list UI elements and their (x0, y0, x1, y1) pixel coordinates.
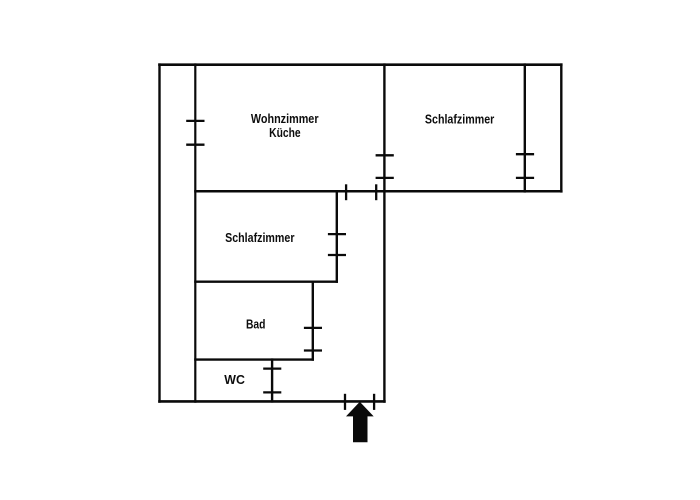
svg-text:Bad: Bad (246, 316, 266, 331)
svg-text:Schlafzimmer: Schlafzimmer (225, 230, 294, 245)
svg-text:Küche: Küche (269, 125, 301, 140)
svg-text:WC: WC (224, 372, 245, 387)
svg-text:Schlafzimmer: Schlafzimmer (425, 112, 494, 127)
